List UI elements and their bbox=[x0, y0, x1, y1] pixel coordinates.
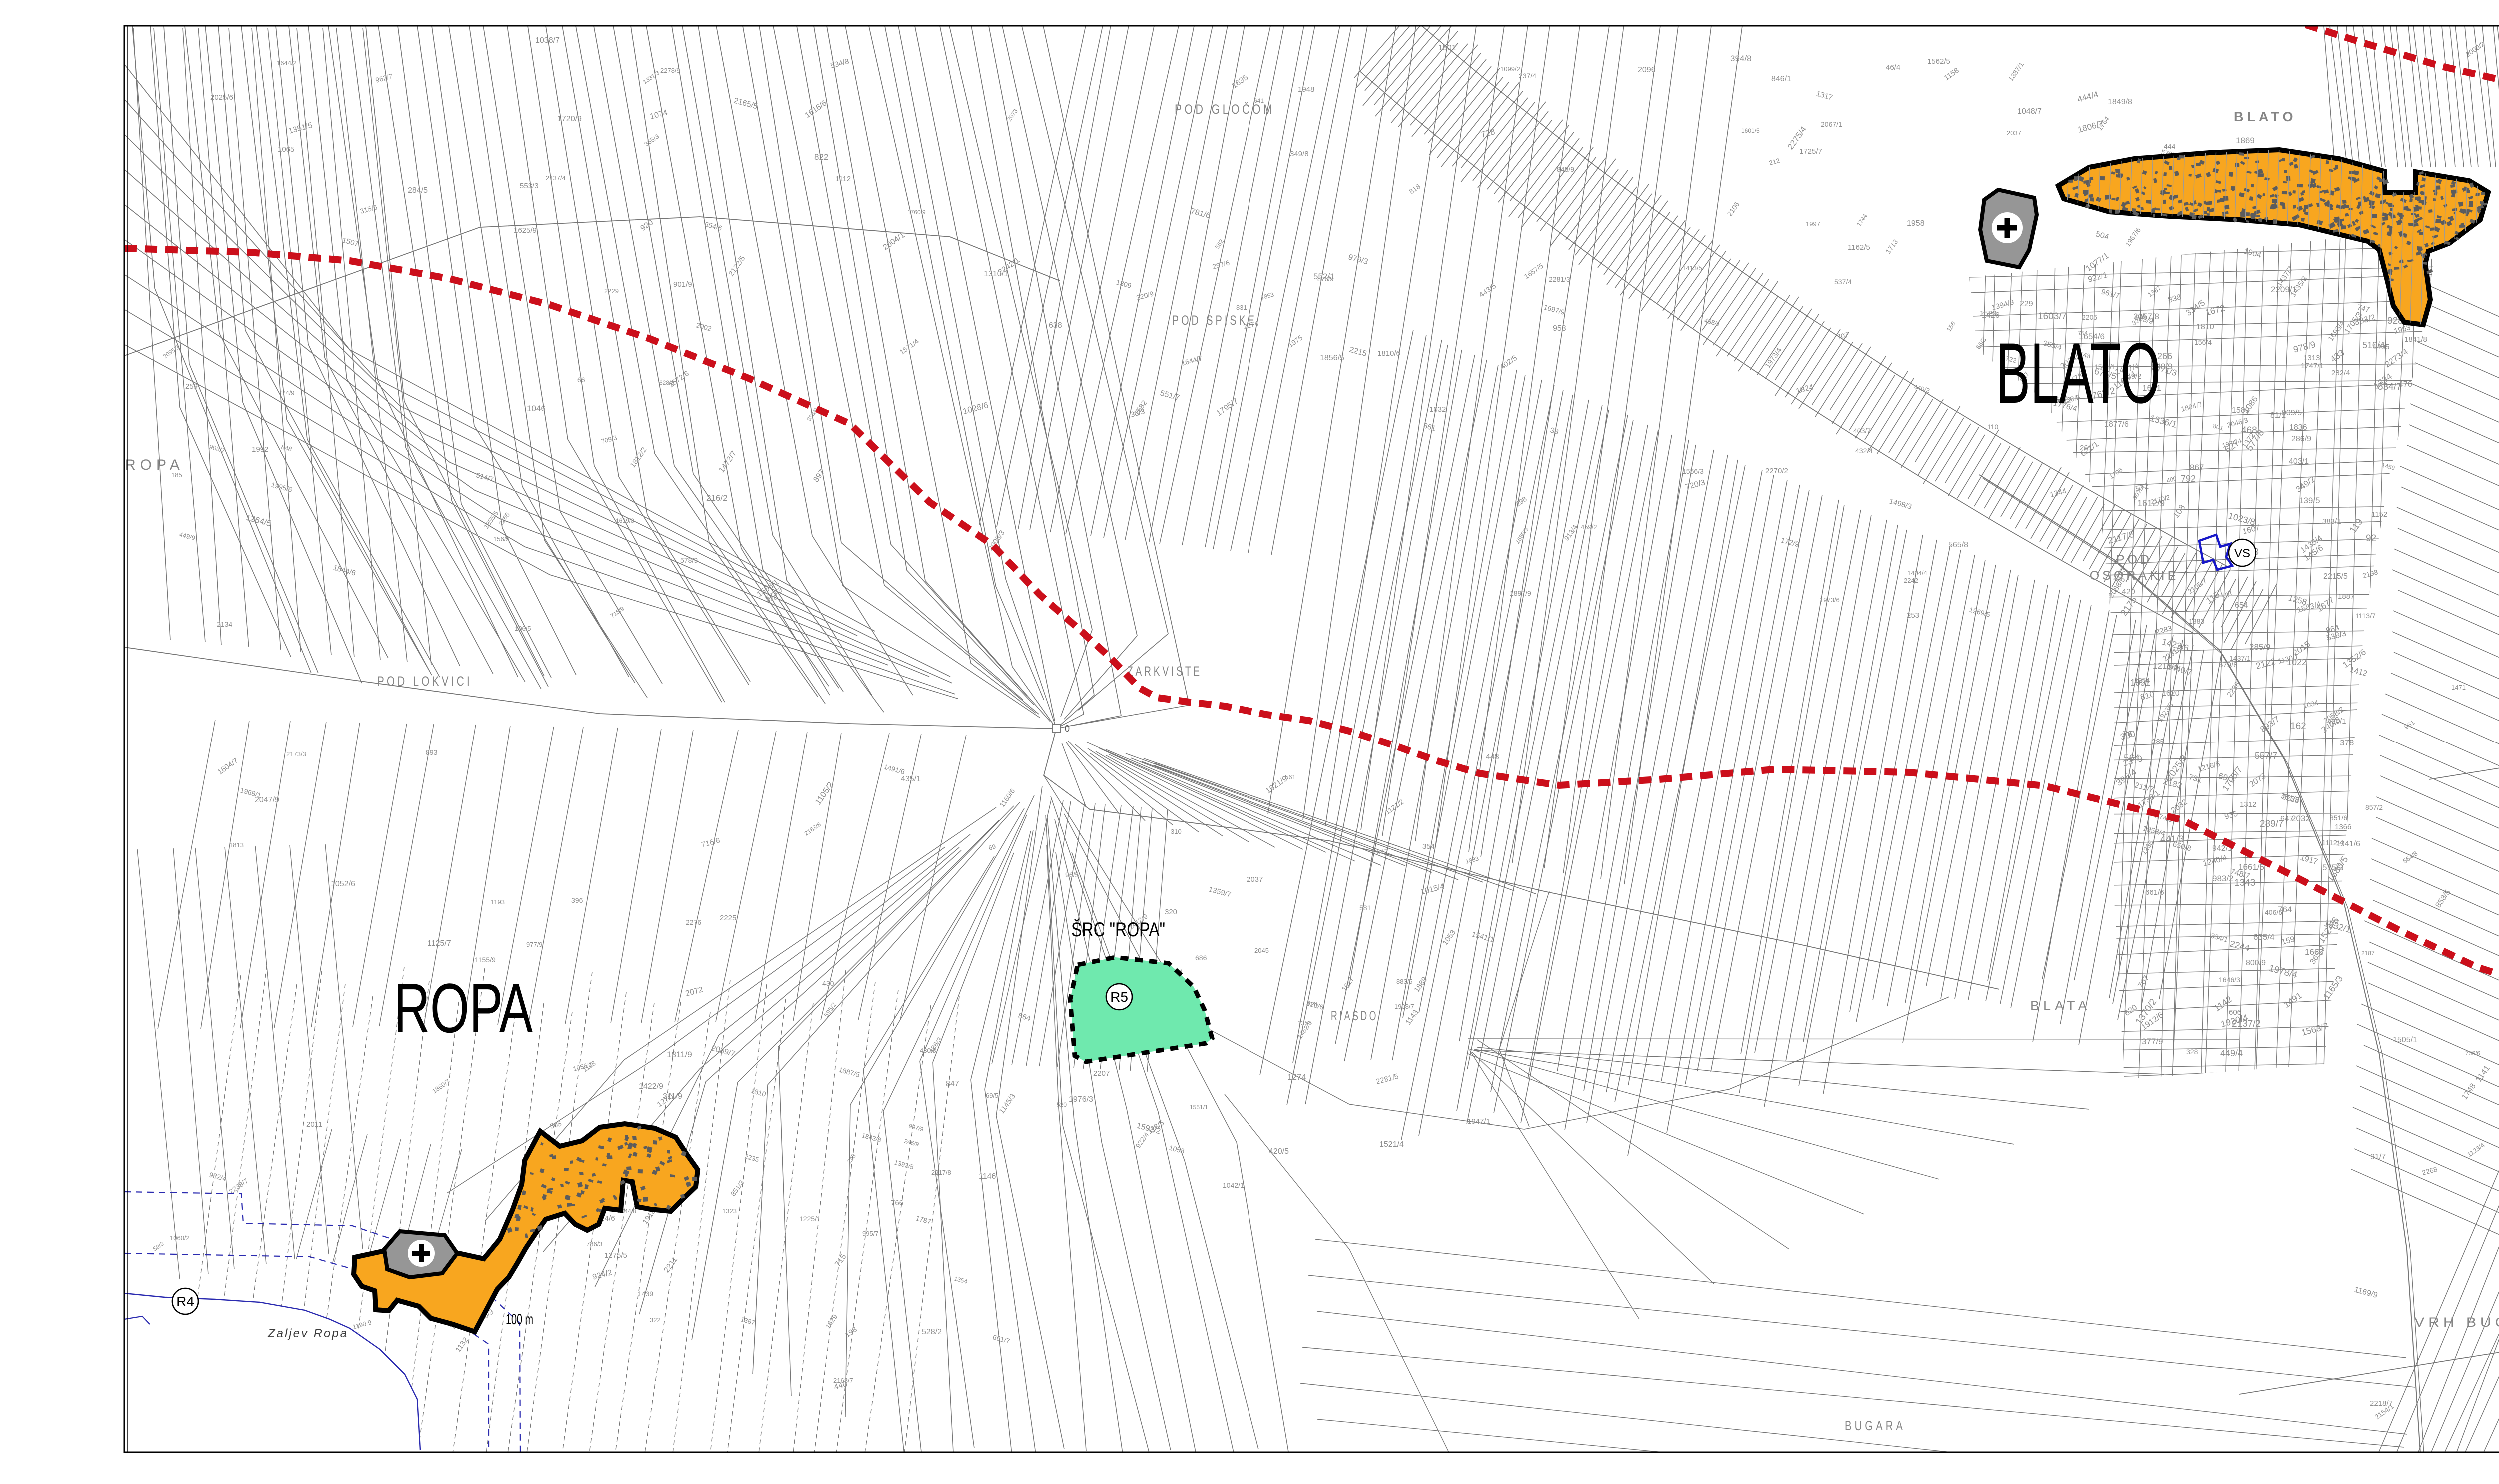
svg-text:553/3: 553/3 bbox=[520, 182, 539, 190]
svg-text:1760/9: 1760/9 bbox=[907, 209, 926, 216]
svg-text:285: 285 bbox=[2152, 738, 2164, 746]
svg-text:654: 654 bbox=[2235, 601, 2248, 610]
svg-text:1341/6: 1341/6 bbox=[2336, 840, 2360, 848]
svg-text:237/4: 237/4 bbox=[1519, 72, 1536, 80]
svg-text:953: 953 bbox=[1553, 324, 1566, 333]
svg-text:1625/9: 1625/9 bbox=[514, 226, 537, 235]
svg-text:2270/2: 2270/2 bbox=[1765, 467, 1788, 475]
svg-text:1032: 1032 bbox=[1429, 405, 1446, 414]
svg-text:1976/3: 1976/3 bbox=[1069, 1095, 1093, 1104]
svg-text:578/9: 578/9 bbox=[680, 556, 698, 564]
svg-text:1225/1: 1225/1 bbox=[799, 1215, 821, 1223]
svg-text:354: 354 bbox=[1422, 842, 1435, 851]
svg-text:1619/8: 1619/8 bbox=[616, 517, 634, 524]
svg-text:901/9: 901/9 bbox=[673, 280, 692, 289]
svg-text:1897/9: 1897/9 bbox=[1510, 589, 1531, 597]
svg-text:310: 310 bbox=[1171, 828, 1182, 835]
svg-text:766: 766 bbox=[891, 1199, 903, 1207]
svg-text:822: 822 bbox=[814, 152, 828, 162]
svg-text:1810/6: 1810/6 bbox=[1377, 349, 1400, 358]
svg-text:253: 253 bbox=[1907, 611, 1919, 620]
svg-text:91/7: 91/7 bbox=[2370, 1153, 2386, 1161]
svg-text:638: 638 bbox=[1049, 321, 1062, 330]
svg-text:0: 0 bbox=[1065, 724, 1070, 734]
svg-text:2207: 2207 bbox=[1093, 1069, 1110, 1078]
svg-text:1162/5: 1162/5 bbox=[1848, 243, 1870, 252]
svg-text:564: 564 bbox=[2124, 753, 2140, 764]
svg-text:977/9: 977/9 bbox=[526, 941, 543, 948]
svg-text:995/7: 995/7 bbox=[862, 1230, 879, 1237]
svg-text:420: 420 bbox=[2122, 588, 2135, 596]
svg-text:534/7: 534/7 bbox=[2378, 382, 2402, 392]
svg-text:520: 520 bbox=[1057, 1101, 1067, 1108]
svg-text:139/5: 139/5 bbox=[2299, 496, 2320, 505]
svg-text:2096: 2096 bbox=[1638, 66, 1656, 74]
svg-text:1877/6: 1877/6 bbox=[2104, 420, 2129, 429]
svg-text:476: 476 bbox=[2399, 380, 2412, 389]
svg-text:1620: 1620 bbox=[2162, 689, 2180, 698]
svg-text:848/9: 848/9 bbox=[1557, 165, 1574, 173]
svg-text:1883: 1883 bbox=[2189, 617, 2204, 625]
svg-text:1099/2: 1099/2 bbox=[1500, 65, 1520, 73]
svg-text:1869: 1869 bbox=[2236, 136, 2255, 145]
svg-text:286/9: 286/9 bbox=[2291, 435, 2311, 443]
svg-text:46/4: 46/4 bbox=[1886, 63, 1900, 72]
svg-text:1274: 1274 bbox=[1287, 1072, 1306, 1082]
svg-text:2278/9: 2278/9 bbox=[660, 67, 680, 74]
svg-text:606: 606 bbox=[2229, 1008, 2241, 1017]
svg-text:1973/6: 1973/6 bbox=[1820, 596, 1840, 604]
svg-text:R5: R5 bbox=[1110, 989, 1128, 1005]
svg-text:289/7: 289/7 bbox=[2260, 819, 2284, 829]
svg-text:POD SPISKE: POD SPISKE bbox=[1172, 313, 1257, 328]
svg-text:259: 259 bbox=[185, 382, 198, 391]
svg-text:92: 92 bbox=[2366, 533, 2376, 544]
svg-text:1505/1: 1505/1 bbox=[2393, 1036, 2417, 1044]
svg-text:635/4: 635/4 bbox=[2253, 932, 2275, 942]
svg-text:403/7: 403/7 bbox=[1853, 427, 1871, 435]
svg-text:1836: 1836 bbox=[2289, 423, 2307, 432]
svg-text:1193: 1193 bbox=[491, 898, 505, 906]
svg-text:435/1: 435/1 bbox=[901, 775, 921, 783]
svg-text:100 m: 100 m bbox=[506, 1311, 533, 1328]
svg-text:552/1: 552/1 bbox=[1313, 272, 1335, 281]
svg-text:575/3: 575/3 bbox=[2322, 863, 2344, 872]
svg-text:285/9: 285/9 bbox=[2249, 642, 2271, 652]
svg-text:394/8: 394/8 bbox=[1730, 54, 1752, 63]
svg-text:284/5: 284/5 bbox=[408, 186, 428, 195]
svg-text:1323: 1323 bbox=[722, 1207, 737, 1215]
svg-text:430: 430 bbox=[822, 979, 834, 987]
svg-text:1125/7: 1125/7 bbox=[427, 939, 451, 948]
svg-text:66: 66 bbox=[577, 376, 585, 384]
svg-text:BLATO: BLATO bbox=[1996, 325, 2161, 421]
svg-text:557/7: 557/7 bbox=[2255, 751, 2277, 761]
svg-text:96/5: 96/5 bbox=[1065, 871, 1079, 879]
svg-text:2225: 2225 bbox=[720, 914, 736, 922]
svg-text:1152: 1152 bbox=[2371, 510, 2387, 519]
svg-text:2045: 2045 bbox=[1254, 947, 1269, 954]
svg-text:1048/7: 1048/7 bbox=[2017, 107, 2042, 116]
svg-text:2037: 2037 bbox=[1247, 875, 1263, 884]
svg-text:POD GLOČOM: POD GLOČOM bbox=[1175, 101, 1275, 117]
svg-text:857/2: 857/2 bbox=[2365, 803, 2383, 811]
svg-text:883/5: 883/5 bbox=[1396, 978, 1413, 985]
svg-text:1155/9: 1155/9 bbox=[475, 956, 496, 964]
svg-text:162: 162 bbox=[2290, 721, 2306, 732]
svg-text:2134: 2134 bbox=[217, 620, 232, 628]
svg-text:383/1: 383/1 bbox=[2322, 517, 2341, 526]
svg-text:1813: 1813 bbox=[229, 841, 244, 849]
svg-text:1644/2: 1644/2 bbox=[277, 59, 297, 67]
svg-text:2173/3: 2173/3 bbox=[286, 750, 306, 758]
svg-text:800/9: 800/9 bbox=[2246, 959, 2266, 967]
svg-text:661/6: 661/6 bbox=[2145, 888, 2164, 897]
svg-text:1038/7: 1038/7 bbox=[535, 36, 560, 45]
svg-text:403/1: 403/1 bbox=[2289, 457, 2309, 466]
svg-text:1313: 1313 bbox=[2303, 354, 2320, 362]
svg-text:2215/5: 2215/5 bbox=[2323, 572, 2348, 581]
svg-text:786/3: 786/3 bbox=[586, 1240, 603, 1248]
svg-text:POD: POD bbox=[2116, 553, 2152, 567]
svg-text:1720/9: 1720/9 bbox=[557, 115, 582, 123]
svg-text:1437/1: 1437/1 bbox=[2229, 654, 2251, 662]
svg-text:1601/5: 1601/5 bbox=[1741, 127, 1760, 134]
svg-text:1113/7: 1113/7 bbox=[2355, 612, 2376, 620]
svg-text:ZARKVISTE: ZARKVISTE bbox=[1127, 664, 1202, 679]
svg-text:2281/3: 2281/3 bbox=[1549, 275, 1570, 283]
svg-text:449/4: 449/4 bbox=[2220, 1048, 2243, 1058]
svg-text:282/4: 282/4 bbox=[2331, 369, 2350, 377]
svg-text:2163/7: 2163/7 bbox=[833, 1377, 853, 1384]
svg-text:349/8: 349/8 bbox=[1290, 150, 1309, 158]
svg-text:1661/5: 1661/5 bbox=[2238, 862, 2264, 872]
svg-text:1958: 1958 bbox=[1907, 219, 1925, 228]
svg-text:2218/7: 2218/7 bbox=[2370, 1399, 2393, 1408]
svg-text:1811/9: 1811/9 bbox=[667, 1050, 692, 1059]
svg-text:565/8: 565/8 bbox=[1948, 541, 1968, 549]
svg-text:2205: 2205 bbox=[2082, 313, 2097, 321]
svg-text:1060/2: 1060/2 bbox=[170, 1234, 190, 1242]
svg-text:528/2: 528/2 bbox=[922, 1328, 942, 1336]
svg-text:2137/2: 2137/2 bbox=[2232, 1019, 2261, 1029]
svg-text:686: 686 bbox=[1195, 954, 1207, 962]
svg-text:792: 792 bbox=[2181, 474, 2196, 484]
svg-text:1254: 1254 bbox=[2134, 676, 2150, 684]
svg-text:1046: 1046 bbox=[527, 404, 546, 413]
svg-text:156/9: 156/9 bbox=[493, 535, 510, 543]
svg-text:1042/1: 1042/1 bbox=[1223, 1181, 1244, 1189]
svg-text:377/9: 377/9 bbox=[2142, 1037, 2163, 1046]
svg-text:1275/5: 1275/5 bbox=[604, 1251, 627, 1260]
svg-text:983/2: 983/2 bbox=[2212, 874, 2234, 883]
svg-text:459/2: 459/2 bbox=[1581, 523, 1597, 531]
svg-text:430/8: 430/8 bbox=[920, 1047, 936, 1054]
svg-text:1747/1: 1747/1 bbox=[2301, 362, 2324, 370]
svg-text:2217/8: 2217/8 bbox=[931, 1169, 951, 1176]
svg-text:420/5: 420/5 bbox=[1269, 1147, 1289, 1156]
svg-text:867: 867 bbox=[2190, 463, 2204, 472]
svg-text:1426: 1426 bbox=[1982, 311, 2000, 320]
svg-text:1501: 1501 bbox=[1438, 44, 1456, 52]
svg-text:1404/4: 1404/4 bbox=[1907, 569, 1927, 577]
svg-text:1646/3: 1646/3 bbox=[2219, 976, 2240, 984]
svg-text:ROPA: ROPA bbox=[125, 457, 184, 473]
svg-text:2011: 2011 bbox=[306, 1120, 322, 1129]
svg-text:Zaljev Ropa: Zaljev Ropa bbox=[267, 1327, 348, 1340]
svg-text:VS: VS bbox=[2234, 547, 2250, 560]
svg-text:1551/1: 1551/1 bbox=[1190, 1104, 1208, 1111]
svg-text:406/6: 406/6 bbox=[2265, 908, 2282, 916]
svg-text:1422/9: 1422/9 bbox=[639, 1082, 663, 1091]
svg-text:1312: 1312 bbox=[2240, 800, 2256, 809]
svg-text:1856/5: 1856/5 bbox=[1320, 354, 1344, 362]
svg-text:BLATA: BLATA bbox=[2030, 998, 2091, 1013]
svg-text:POD LOKVICI: POD LOKVICI bbox=[377, 674, 472, 689]
svg-text:BUGARA: BUGARA bbox=[1845, 1418, 1906, 1433]
svg-text:2025/6: 2025/6 bbox=[210, 93, 233, 102]
svg-text:1725/7: 1725/7 bbox=[1799, 147, 1822, 156]
svg-text:2037: 2037 bbox=[2007, 129, 2021, 137]
svg-text:1112: 1112 bbox=[835, 175, 851, 183]
svg-text:1603/7: 1603/7 bbox=[2038, 311, 2067, 322]
svg-text:2229: 2229 bbox=[604, 287, 619, 295]
svg-text:581: 581 bbox=[1359, 904, 1371, 912]
svg-text:BLATO: BLATO bbox=[2234, 109, 2297, 124]
svg-text:1413/5: 1413/5 bbox=[1682, 264, 1702, 272]
svg-text:106/5: 106/5 bbox=[515, 625, 531, 632]
svg-text:2032: 2032 bbox=[2291, 814, 2310, 823]
svg-text:328: 328 bbox=[2186, 1048, 2198, 1056]
svg-text:1343: 1343 bbox=[2234, 878, 2255, 888]
svg-text:1052/6: 1052/6 bbox=[331, 880, 355, 888]
svg-text:1405: 1405 bbox=[2373, 343, 2389, 351]
svg-text:1562/5: 1562/5 bbox=[1927, 57, 1950, 66]
svg-text:229: 229 bbox=[2020, 300, 2033, 308]
svg-text:2187: 2187 bbox=[2361, 950, 2375, 957]
svg-text:1065: 1065 bbox=[278, 145, 294, 154]
svg-text:1556/3: 1556/3 bbox=[1682, 467, 1704, 475]
svg-text:831: 831 bbox=[1236, 304, 1247, 311]
svg-text:2242: 2242 bbox=[1904, 577, 1918, 584]
svg-text:1992: 1992 bbox=[252, 445, 268, 454]
svg-text:432/4: 432/4 bbox=[1855, 447, 1873, 455]
svg-text:1146: 1146 bbox=[979, 1172, 996, 1181]
svg-text:156/4: 156/4 bbox=[2194, 338, 2212, 346]
svg-text:VRH BUGARA: VRH BUGARA bbox=[2414, 1315, 2499, 1330]
svg-text:774/9: 774/9 bbox=[278, 389, 295, 397]
svg-text:69/5: 69/5 bbox=[986, 1092, 998, 1099]
svg-text:756/6: 756/6 bbox=[2465, 1050, 2480, 1057]
svg-text:ROPA: ROPA bbox=[394, 969, 533, 1047]
svg-text:537/4: 537/4 bbox=[1834, 278, 1852, 286]
svg-text:1521/4: 1521/4 bbox=[1379, 1140, 1404, 1149]
svg-text:ŠRC "ROPA": ŠRC "ROPA" bbox=[1071, 918, 1165, 941]
svg-text:1849/8: 1849/8 bbox=[2108, 98, 2132, 106]
svg-text:216/2: 216/2 bbox=[706, 493, 728, 503]
svg-text:909/5: 909/5 bbox=[2282, 409, 2302, 417]
svg-text:1841/8: 1841/8 bbox=[2404, 335, 2427, 344]
svg-text:396: 396 bbox=[571, 896, 583, 904]
svg-text:2276: 2276 bbox=[686, 918, 701, 926]
svg-text:1908/7: 1908/7 bbox=[1394, 1003, 1414, 1010]
svg-text:R4: R4 bbox=[176, 1294, 194, 1309]
svg-text:1351: 1351 bbox=[1297, 1019, 1312, 1027]
svg-text:647: 647 bbox=[1376, 848, 1388, 856]
svg-text:1439: 1439 bbox=[638, 1290, 653, 1298]
svg-text:1947/1: 1947/1 bbox=[1467, 1117, 1490, 1126]
svg-text:847: 847 bbox=[946, 1080, 959, 1088]
svg-text:893: 893 bbox=[426, 748, 438, 756]
svg-text:1997: 1997 bbox=[1806, 220, 1820, 228]
svg-text:351/6: 351/6 bbox=[2330, 814, 2347, 822]
svg-text:110: 110 bbox=[1987, 423, 1999, 431]
svg-text:1887: 1887 bbox=[2338, 592, 2354, 601]
svg-text:1471: 1471 bbox=[2451, 684, 2466, 691]
svg-text:1366: 1366 bbox=[2335, 823, 2351, 831]
svg-text:1948: 1948 bbox=[1298, 85, 1314, 94]
svg-text:2067/1: 2067/1 bbox=[1821, 120, 1842, 128]
svg-text:448: 448 bbox=[1486, 753, 1499, 761]
svg-text:OSORAKIE: OSORAKIE bbox=[2090, 569, 2179, 583]
svg-text:RIASDO: RIASDO bbox=[1331, 1008, 1378, 1023]
svg-text:322: 322 bbox=[650, 1316, 661, 1324]
svg-text:1810: 1810 bbox=[2196, 323, 2214, 331]
svg-text:320: 320 bbox=[1165, 908, 1177, 916]
svg-text:846/1: 846/1 bbox=[1771, 75, 1791, 83]
svg-text:2137/4: 2137/4 bbox=[546, 174, 566, 182]
svg-text:378: 378 bbox=[2340, 738, 2354, 747]
